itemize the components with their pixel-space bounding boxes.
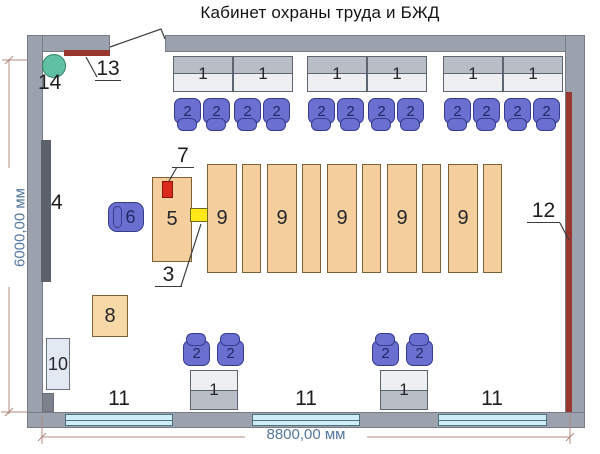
lab-table-bench: [422, 164, 441, 273]
lab-table-group: 9: [207, 164, 261, 273]
window: [65, 414, 173, 426]
item-3-yellow-box: [190, 208, 208, 222]
chair-seat: [220, 333, 240, 346]
label-item-12: 12: [527, 200, 560, 223]
student-desk: 1: [233, 56, 293, 92]
chair-seat: [375, 333, 395, 346]
student-chair: 2: [444, 98, 471, 131]
lab-table-bench: [362, 164, 381, 273]
student-chair: 2: [183, 333, 210, 366]
student-desk: 1: [503, 56, 563, 92]
chair-seat: [186, 333, 206, 346]
lab-table-group: 9: [327, 164, 381, 273]
window: [438, 414, 547, 426]
student-desk: 1: [190, 370, 238, 410]
wall-corner-pilaster: [42, 393, 54, 412]
lab-table-bench: [483, 164, 502, 273]
teacher-chair: 6: [108, 202, 144, 232]
chair-seat: [237, 118, 257, 131]
lab-table-group: 9: [267, 164, 321, 273]
student-chair: 2: [203, 98, 230, 131]
chair-seat: [507, 118, 527, 131]
lab-table-bench: [302, 164, 321, 273]
label-item-7: 7: [172, 145, 194, 168]
chair-seat: [536, 118, 556, 131]
chair-backrest: [113, 206, 122, 228]
chair-seat: [409, 333, 429, 346]
wall-top: [165, 35, 585, 52]
chair-seat: [400, 118, 420, 131]
diagram-title: Кабинет охраны труда и БЖД: [40, 3, 600, 23]
student-chair: 2: [533, 98, 560, 131]
cabinet-item-10: 10: [46, 338, 70, 390]
student-chair: 2: [504, 98, 531, 131]
chair-seat: [476, 118, 496, 131]
label-item-4: 4: [51, 192, 63, 213]
chair-seat: [447, 118, 467, 131]
chair-seat: [266, 118, 286, 131]
floor-plan: Кабинет охраны труда и БЖД 1 1 1 1 1 1 2…: [0, 0, 600, 454]
label-window: 11: [99, 388, 139, 409]
student-desk: 1: [367, 56, 427, 92]
student-chair: 2: [263, 98, 290, 131]
label-item-3: 3: [155, 264, 182, 287]
student-desk: 1: [443, 56, 503, 92]
label-item-13: 13: [95, 58, 121, 81]
chair-seat: [206, 118, 226, 131]
label-window: 11: [286, 388, 326, 409]
lab-table-group: 9: [448, 164, 502, 273]
chair-seat: [311, 118, 331, 131]
label-item-14: 14: [38, 72, 61, 93]
student-chair: 2: [217, 333, 244, 366]
item-7-red-box: [162, 181, 173, 198]
chalkboard-item-4: [41, 140, 51, 282]
student-chair: 2: [308, 98, 335, 131]
window: [252, 414, 360, 426]
student-chair: 2: [397, 98, 424, 131]
lab-table-bench: [242, 164, 261, 273]
chair-seat: [177, 118, 197, 131]
cabinet-item-8: 8: [92, 295, 128, 337]
dimension-width: 8800,00 мм: [246, 426, 366, 443]
item-13-strip: [64, 50, 110, 56]
student-desk: 1: [380, 370, 428, 410]
dimension-height: 6000,00 мм: [12, 168, 29, 288]
student-chair: 2: [406, 333, 433, 366]
student-desk: 1: [307, 56, 367, 92]
student-chair: 2: [372, 333, 399, 366]
student-desk: 1: [173, 56, 233, 92]
chair-seat: [371, 118, 391, 131]
student-chair: 2: [368, 98, 395, 131]
chair-seat: [340, 118, 360, 131]
door-swing-line: [110, 29, 165, 47]
student-chair: 2: [473, 98, 500, 131]
student-chair: 2: [174, 98, 201, 131]
lab-table-group: 9: [387, 164, 441, 273]
item-12-strip: [566, 92, 572, 412]
student-chair: 2: [337, 98, 364, 131]
label-window: 11: [472, 388, 512, 409]
student-chair: 2: [234, 98, 261, 131]
